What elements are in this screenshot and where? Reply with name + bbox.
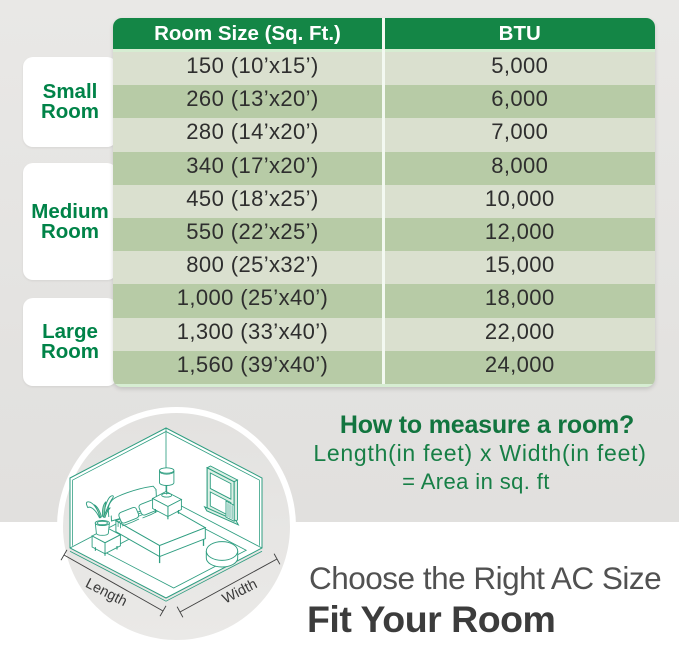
svg-text:Length: Length <box>83 576 130 610</box>
svg-text:Width: Width <box>220 576 260 607</box>
